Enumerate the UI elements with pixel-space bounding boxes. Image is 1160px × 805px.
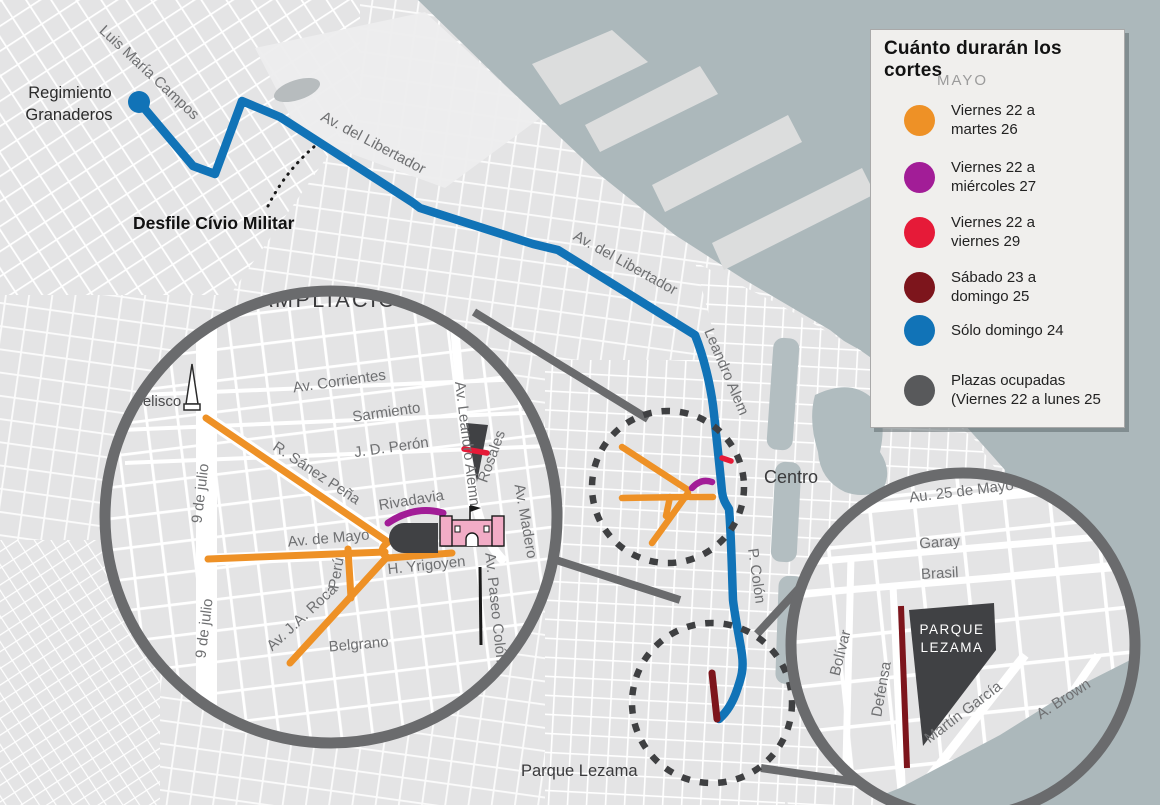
legend-item-text: Viernes 22 a xyxy=(951,101,1035,120)
brasil-label: Brasil xyxy=(921,564,959,583)
legend-item-text: domingo 25 xyxy=(951,287,1036,306)
red-dot-icon xyxy=(904,217,935,248)
legend-month: MAYO xyxy=(937,72,988,89)
infographic-map: AMPLIACIÓN Obelisco Av. Corrientes Sarmi… xyxy=(0,0,1160,805)
plaza-de-mayo-occupied xyxy=(389,523,438,553)
legend-panel: Cuánto durarán los cortes MAYO Viernes 2… xyxy=(870,29,1125,428)
legend-item-text: miércoles 27 xyxy=(951,177,1036,196)
parque-lezama-label: Parque Lezama xyxy=(521,762,638,780)
legend-title: Cuánto durarán los cortes xyxy=(884,38,1124,82)
legend-item-orange: Viernes 22 a martes 26 xyxy=(904,101,1035,139)
paseo-colon-line xyxy=(480,567,481,645)
garay-label: Garay xyxy=(919,533,961,553)
legend-item-text: Viernes 22 a xyxy=(951,213,1035,232)
legend-item-text: Sólo domingo 24 xyxy=(951,321,1064,340)
lezama-closure-segment xyxy=(712,673,717,719)
gray-dot-icon xyxy=(904,375,935,406)
legend-item-darkred: Sábado 23 a domingo 25 xyxy=(904,268,1036,306)
legend-item-gray: Plazas ocupadas (Viernes 22 a lunes 25 xyxy=(904,371,1101,409)
regimiento-label-line2: Granaderos xyxy=(25,106,112,124)
parque-lezama-inset-label-1: PARQUE xyxy=(919,622,984,637)
legend-item-text: Viernes 22 a xyxy=(951,158,1036,177)
blue-dot-icon xyxy=(904,315,935,346)
legend-item-text: martes 26 xyxy=(951,120,1035,139)
legend-item-text: Sábado 23 a xyxy=(951,268,1036,287)
orange-dot-icon xyxy=(904,105,935,136)
regimiento-label-line1: Regimiento xyxy=(28,84,111,102)
route-start-marker xyxy=(128,91,150,113)
darkred-dot-icon xyxy=(904,272,935,303)
magenta-dot-icon xyxy=(904,162,935,193)
legend-item-text: (Viernes 22 a lunes 25 xyxy=(951,390,1101,409)
legend-item-red: Viernes 22 a viernes 29 xyxy=(904,213,1035,251)
desfile-label: Desfile Cívio Militar xyxy=(133,213,295,233)
centro-label: Centro xyxy=(764,467,818,487)
legend-item-text: viernes 29 xyxy=(951,232,1035,251)
peru-closure xyxy=(348,549,351,598)
legend-item-text: Plazas ocupadas xyxy=(951,371,1101,390)
parque-lezama-inset-label-2: LEZAMA xyxy=(920,640,983,655)
legend-item-blue: Sólo domingo 24 xyxy=(904,315,1064,346)
legend-item-magenta: Viernes 22 a miércoles 27 xyxy=(904,158,1036,196)
